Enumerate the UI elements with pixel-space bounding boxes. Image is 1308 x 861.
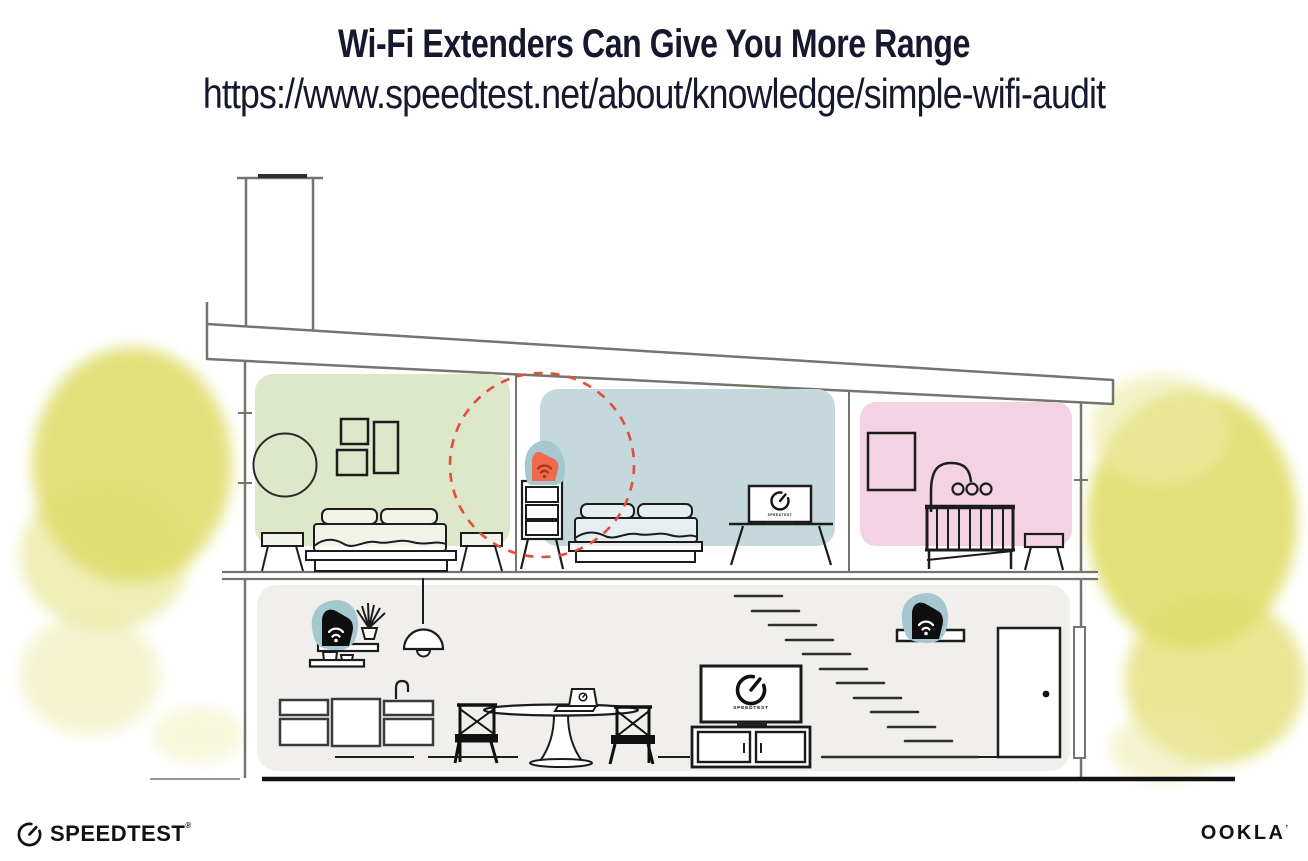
ookla-wordmark: OOKLA bbox=[1201, 822, 1286, 844]
wifi-router bbox=[312, 600, 358, 650]
bed bbox=[306, 509, 456, 571]
nightstand bbox=[262, 533, 303, 571]
living-room-tv: SPEEDTEST bbox=[701, 666, 801, 726]
foliage-left bbox=[20, 347, 243, 763]
house-cross-section-illustration: SPEEDTEST bbox=[0, 0, 1308, 861]
registered-mark: ® bbox=[185, 821, 191, 830]
speedtest-gauge-icon bbox=[16, 820, 43, 847]
wifi-extender bbox=[902, 593, 948, 643]
chimney bbox=[237, 176, 323, 332]
nursery-background bbox=[860, 402, 1072, 546]
tv-screen-label: SPEEDTEST bbox=[768, 513, 793, 517]
tv-console bbox=[692, 727, 810, 767]
speedtest-wordmark: SPEEDTEST® bbox=[50, 821, 192, 847]
ookla-logo: OOKLA’ bbox=[1201, 822, 1288, 845]
nightstand bbox=[461, 533, 502, 571]
door-knob bbox=[1043, 691, 1050, 698]
infographic-canvas: Wi-Fi Extenders Can Give You More Range … bbox=[0, 0, 1308, 861]
front-door bbox=[998, 628, 1060, 757]
speedtest-logo: SPEEDTEST® bbox=[16, 820, 192, 847]
tv-screen-label: SPEEDTEST bbox=[733, 705, 769, 711]
foliage-right bbox=[1087, 375, 1305, 783]
trademark-tick: ’ bbox=[1285, 823, 1288, 833]
